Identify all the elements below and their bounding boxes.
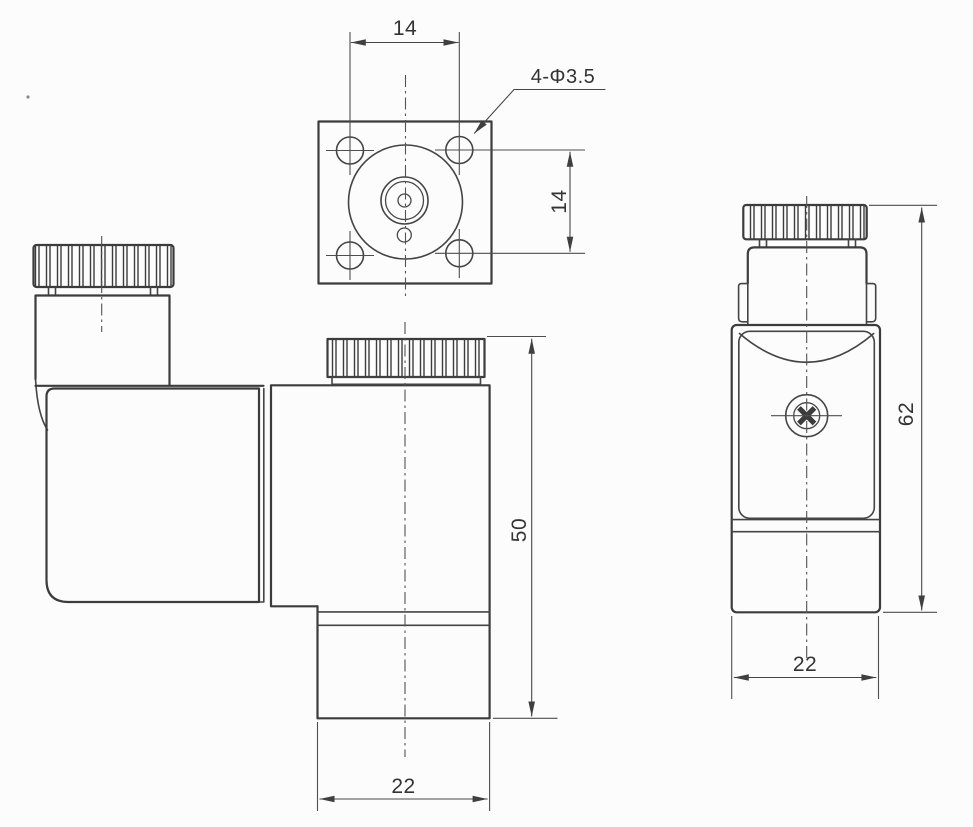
- center-pin: [398, 194, 411, 207]
- side-body-outline: [732, 325, 880, 612]
- knurled-ring: [328, 339, 485, 377]
- dim-label-top-14: 14: [393, 17, 417, 40]
- technical-drawing-canvas: 14 4-Φ3.5 14 50 22: [0, 0, 973, 827]
- connector-neck: [49, 287, 158, 296]
- top-view-flange: 14 4-Φ3.5 14: [319, 17, 606, 298]
- armature-tube: [318, 606, 490, 718]
- dim-label-62: 62: [895, 402, 918, 426]
- coil-body: [271, 385, 490, 606]
- scan-speck: [26, 95, 29, 98]
- side-ear-left: [739, 284, 748, 322]
- drawing-svg: 14 4-Φ3.5 14 50 22: [0, 0, 973, 827]
- connector-knurled-cap: [34, 245, 174, 287]
- dim-label-front-22: 22: [391, 775, 415, 798]
- side-ear-right: [867, 284, 876, 322]
- dim-label-50: 50: [508, 518, 531, 542]
- side-knurled-cap: [743, 205, 866, 239]
- hole-callout-label: 4-Φ3.5: [531, 66, 596, 88]
- center-bore-inner: [386, 182, 424, 220]
- center-bore-outer: [381, 177, 428, 224]
- dim-label-side-22: 22: [793, 653, 817, 676]
- side-cap-neck: [760, 239, 856, 247]
- hole-callout-leader: [474, 90, 605, 134]
- small-port-hole: [397, 228, 411, 242]
- tube-flange-lines: [318, 612, 490, 625]
- front-view: 50 22: [34, 236, 558, 811]
- connector-housing: [36, 296, 170, 386]
- side-view: 62 22: [732, 196, 937, 699]
- side-body-band-lines: [732, 520, 880, 532]
- connector-block: [47, 389, 260, 603]
- dim-label-right-14: 14: [548, 189, 571, 213]
